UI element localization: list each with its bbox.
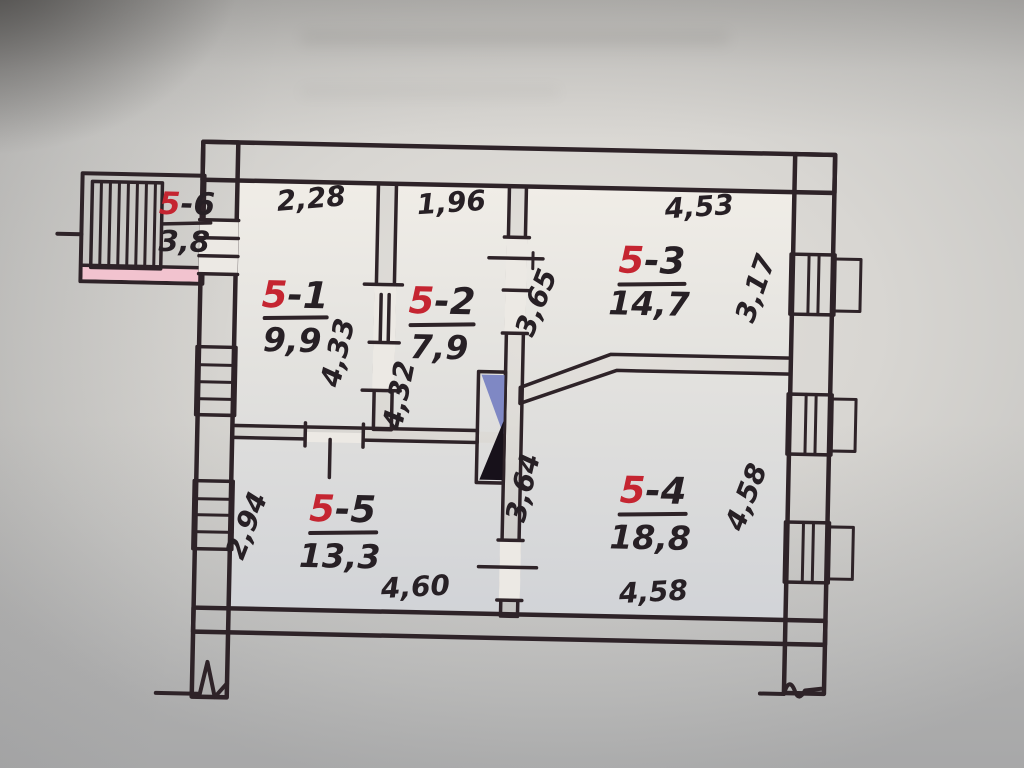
window-right-r4-upper — [787, 394, 856, 455]
room-5-2-number: 5-2 — [408, 279, 476, 323]
wall-right — [784, 154, 835, 694]
window-right-r3 — [790, 254, 861, 315]
room-number-red-prefix: 5 — [408, 279, 435, 323]
room-5-4-number: 5-4 — [619, 469, 687, 513]
room-5-2-area: 7,9 — [409, 327, 468, 367]
photographed-paper-background: 5-1 9,9 5-2 7,9 5-3 14,7 5-4 18,8 5-5 13… — [0, 0, 1024, 768]
room-5-4-area: 18,8 — [609, 517, 691, 558]
label-underline — [411, 323, 474, 326]
room-5-5-number: 5-5 — [309, 487, 377, 531]
window-sill — [834, 259, 861, 312]
dim-top-r1: 2,28 — [275, 179, 347, 218]
room-5-1-area: 9,9 — [263, 320, 322, 360]
room-5-6-area: 3,8 — [158, 224, 210, 259]
room-number-red-prefix: 5 — [261, 273, 288, 317]
room-5-3-number: 5-3 — [618, 238, 686, 282]
dim-top-r2: 1,96 — [416, 184, 487, 222]
room-5-3-area: 14,7 — [608, 283, 690, 324]
window-sill — [828, 527, 853, 579]
dim-r4-bottom: 4,58 — [617, 574, 689, 610]
room-number-red-prefix: 5 — [159, 186, 181, 222]
dimension-tick — [57, 234, 81, 235]
room-number-red-prefix: 5 — [619, 469, 646, 513]
window-right-r4-lower — [784, 522, 853, 583]
label-underline — [620, 513, 686, 516]
label-underline — [310, 531, 376, 534]
label-underline — [265, 316, 327, 319]
wall-end-tick-left — [156, 693, 190, 694]
window-left-r1 — [196, 347, 236, 416]
room-number-red-prefix: 5 — [618, 238, 645, 282]
wall-break-left — [190, 662, 228, 698]
dim-r5-bottom: 4,60 — [379, 569, 451, 605]
dim-top-r3: 4,53 — [663, 188, 735, 226]
room-number-red-prefix: 5 — [309, 487, 336, 531]
room-5-1-number: 5-1 — [261, 273, 329, 317]
floor-plan-drawing: 5-1 9,9 5-2 7,9 5-3 14,7 5-4 18,8 5-5 13… — [0, 0, 1024, 768]
room-5-6-number: 5-6 — [159, 186, 216, 223]
room-5-5-area: 13,3 — [299, 536, 381, 577]
stair-hatch-lines — [100, 183, 156, 268]
window-sill — [831, 399, 856, 451]
